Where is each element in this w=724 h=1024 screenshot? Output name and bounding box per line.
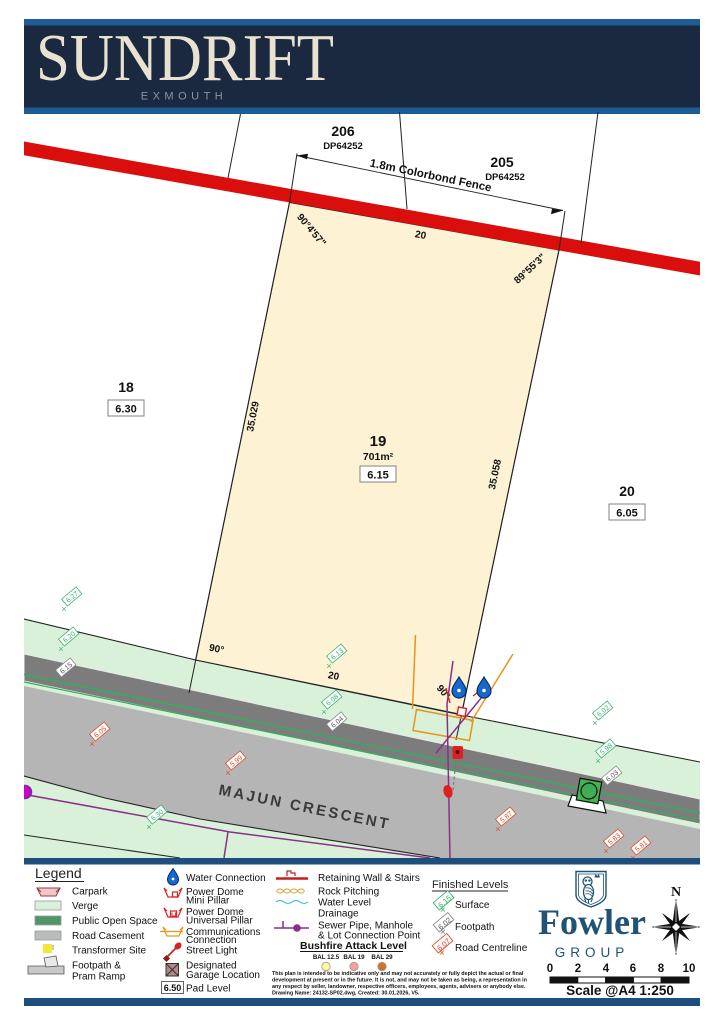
svg-text:205: 205 (490, 154, 514, 170)
svg-text:×: × (146, 822, 151, 832)
svg-text:Garage Location: Garage Location (186, 970, 260, 981)
svg-text:×: × (89, 739, 94, 749)
svg-text:Verge: Verge (72, 901, 99, 912)
svg-text:Street Light: Street Light (186, 946, 237, 957)
svg-text:DP64252: DP64252 (485, 172, 525, 183)
svg-text:701m²: 701m² (363, 451, 394, 463)
svg-text:BAL 12.5: BAL 12.5 (313, 954, 340, 961)
svg-text:Road Centreline: Road Centreline (455, 943, 528, 954)
svg-text:BAL 19: BAL 19 (343, 954, 365, 961)
svg-text:8: 8 (658, 963, 665, 975)
svg-text:×: × (58, 644, 63, 654)
svg-text:×: × (439, 948, 445, 959)
svg-text:SUNDRIFT: SUNDRIFT (36, 21, 334, 95)
svg-text:Pad Level: Pad Level (186, 984, 230, 995)
svg-text:Bushfire Attack Level: Bushfire Attack Level (300, 940, 407, 952)
svg-text:6.50: 6.50 (164, 983, 182, 993)
svg-text:Road Casement: Road Casement (72, 931, 144, 942)
svg-text:Retaining Wall & Stairs: Retaining Wall & Stairs (318, 873, 420, 884)
svg-text:×: × (592, 718, 597, 728)
svg-text:Scale @A4 1:250: Scale @A4 1:250 (566, 983, 674, 998)
svg-text:N: N (671, 885, 681, 900)
svg-text:This plan is intended to be in: This plan is intended to be indicative o… (272, 971, 524, 977)
svg-text:6.15: 6.15 (367, 470, 388, 482)
svg-text:Drawing Name: 24132-SP02.dwg,: Drawing Name: 24132-SP02.dwg, Created: 3… (272, 991, 420, 997)
svg-text:GROUP: GROUP (555, 945, 630, 960)
svg-text:10: 10 (683, 963, 696, 975)
svg-text:Carpark: Carpark (72, 887, 109, 898)
svg-text:6.05: 6.05 (616, 508, 637, 520)
svg-text:×: × (603, 846, 608, 856)
svg-text:development at present or in t: development at present or in the future.… (272, 978, 527, 984)
svg-text:Footpath: Footpath (455, 922, 494, 933)
svg-text:EXMOUTH: EXMOUTH (141, 91, 228, 103)
svg-text:Surface: Surface (455, 900, 490, 911)
svg-text:Universal Pillar: Universal Pillar (186, 916, 253, 927)
svg-text:×: × (495, 824, 500, 834)
svg-text:Fowler: Fowler (538, 902, 646, 942)
svg-text:6.30: 6.30 (115, 404, 136, 416)
svg-text:BAL 29: BAL 29 (371, 954, 393, 961)
svg-text:×: × (225, 768, 230, 778)
svg-text:0: 0 (547, 963, 553, 975)
svg-text:1.8m Colorbond Fence: 1.8m Colorbond Fence (369, 158, 493, 195)
svg-text:Public Open Space: Public Open Space (72, 916, 158, 927)
svg-text:×: × (61, 604, 66, 614)
svg-text:Finished Levels: Finished Levels (432, 879, 509, 891)
svg-text:20: 20 (619, 483, 635, 499)
svg-text:×: × (326, 661, 331, 671)
svg-text:2: 2 (575, 963, 581, 975)
svg-text:18: 18 (118, 379, 134, 395)
svg-text:Legend: Legend (35, 865, 82, 881)
svg-text:Mini Pillar: Mini Pillar (186, 896, 230, 907)
svg-text:Pram Ramp: Pram Ramp (72, 972, 126, 983)
svg-text:Water Connection: Water Connection (186, 873, 266, 884)
svg-text:Footpath &: Footpath & (72, 961, 121, 972)
svg-text:×: × (595, 756, 600, 766)
svg-text:any respect by seller, landown: any respect by seller, landowner, respec… (272, 984, 526, 990)
svg-text:Rock Pitching: Rock Pitching (318, 887, 379, 898)
svg-text:Drainage: Drainage (318, 909, 359, 920)
svg-text:206: 206 (331, 123, 355, 139)
svg-text:×: × (321, 707, 326, 717)
svg-text:DP64252: DP64252 (323, 141, 363, 152)
svg-text:6: 6 (630, 963, 636, 975)
svg-text:19: 19 (370, 433, 387, 450)
svg-text:Connection: Connection (186, 935, 237, 946)
svg-text:Transformer Site: Transformer Site (72, 946, 147, 957)
svg-text:4: 4 (603, 963, 610, 975)
svg-text:Water Level: Water Level (318, 898, 371, 909)
